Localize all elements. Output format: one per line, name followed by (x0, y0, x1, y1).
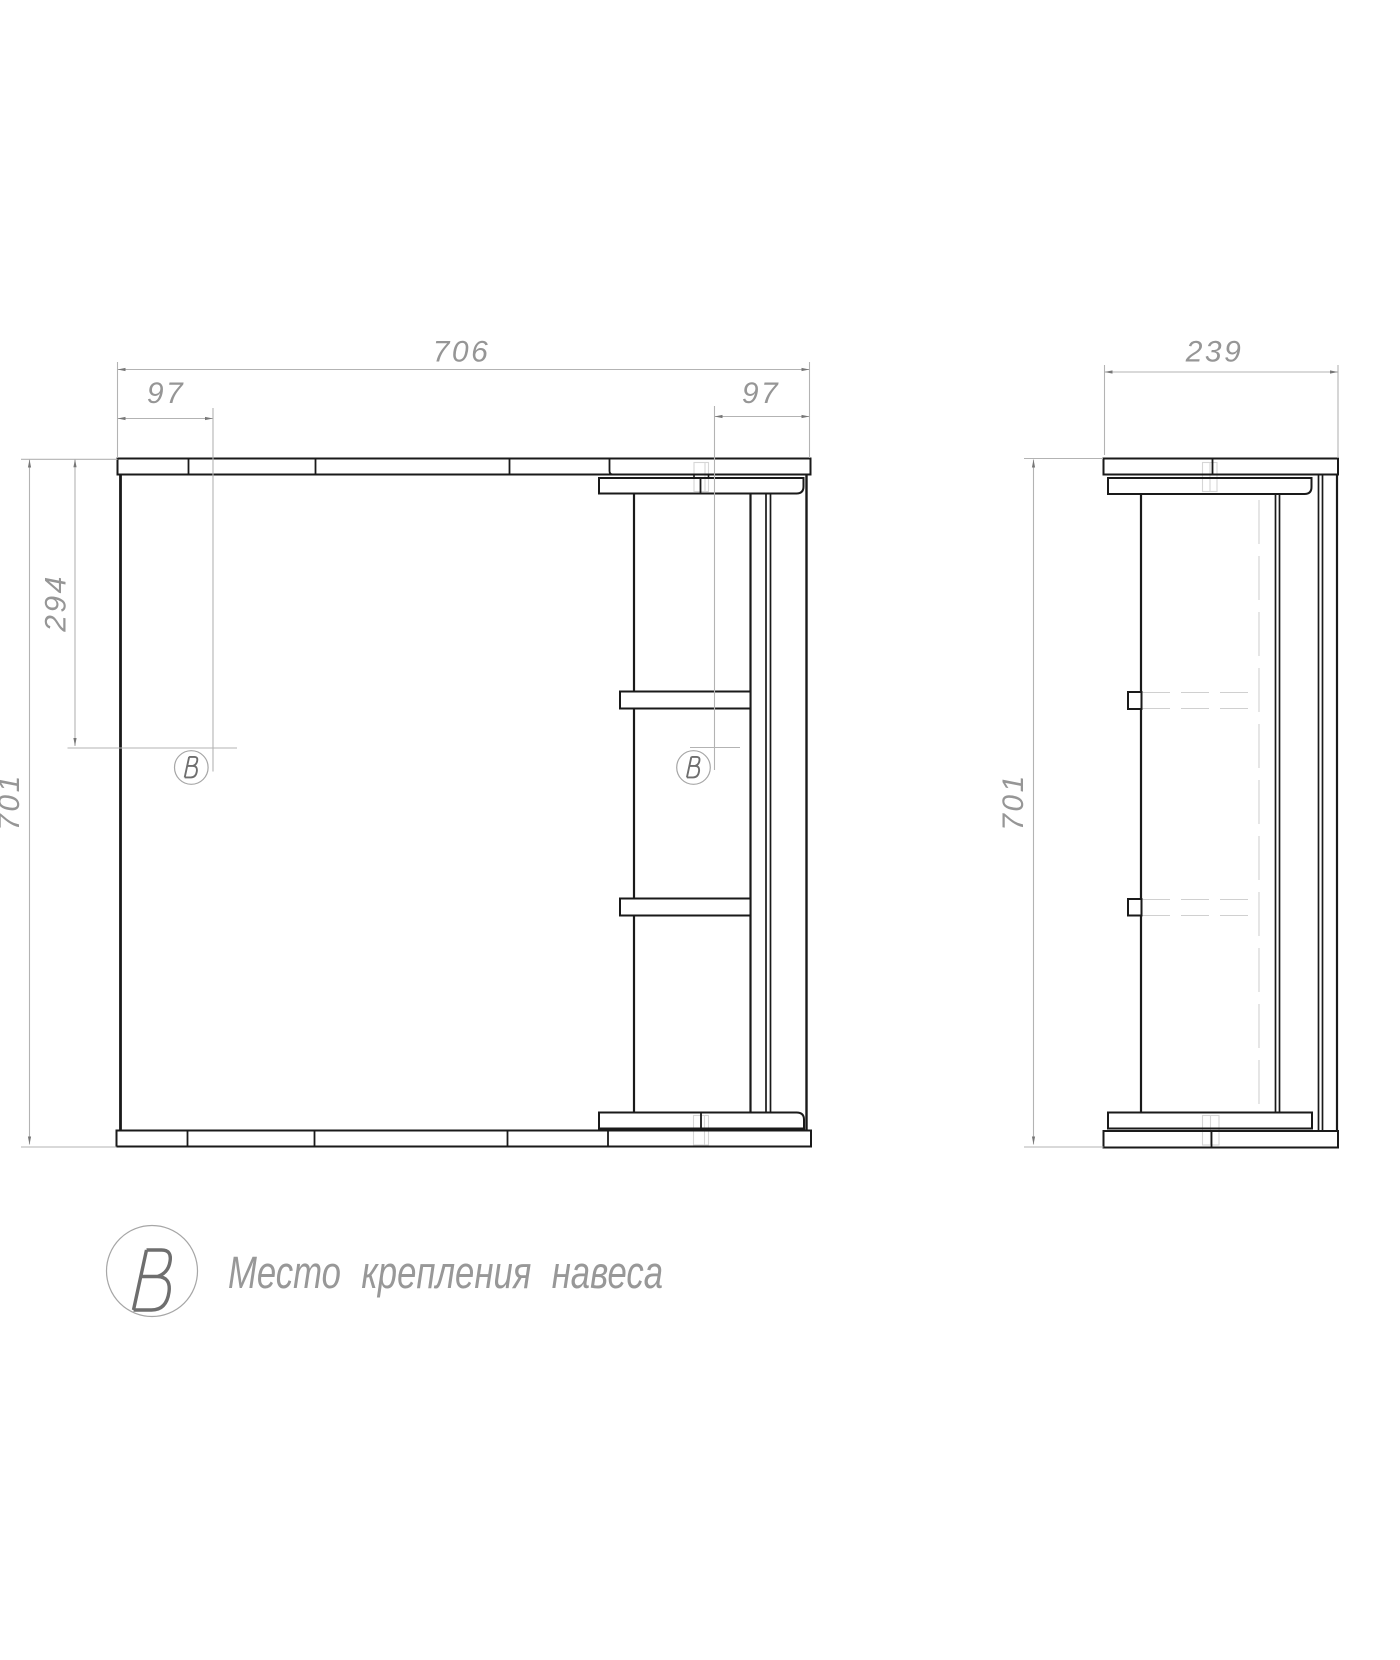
svg-text:701: 701 (997, 773, 1030, 831)
svg-text:97: 97 (147, 377, 185, 410)
svg-text:97: 97 (742, 377, 780, 410)
svg-text:294: 294 (40, 574, 73, 633)
svg-text:706: 706 (433, 336, 491, 369)
svg-text:Место крепления навеса: Место крепления навеса (228, 1247, 663, 1298)
svg-text:701: 701 (0, 773, 26, 831)
svg-text:239: 239 (1185, 336, 1244, 369)
